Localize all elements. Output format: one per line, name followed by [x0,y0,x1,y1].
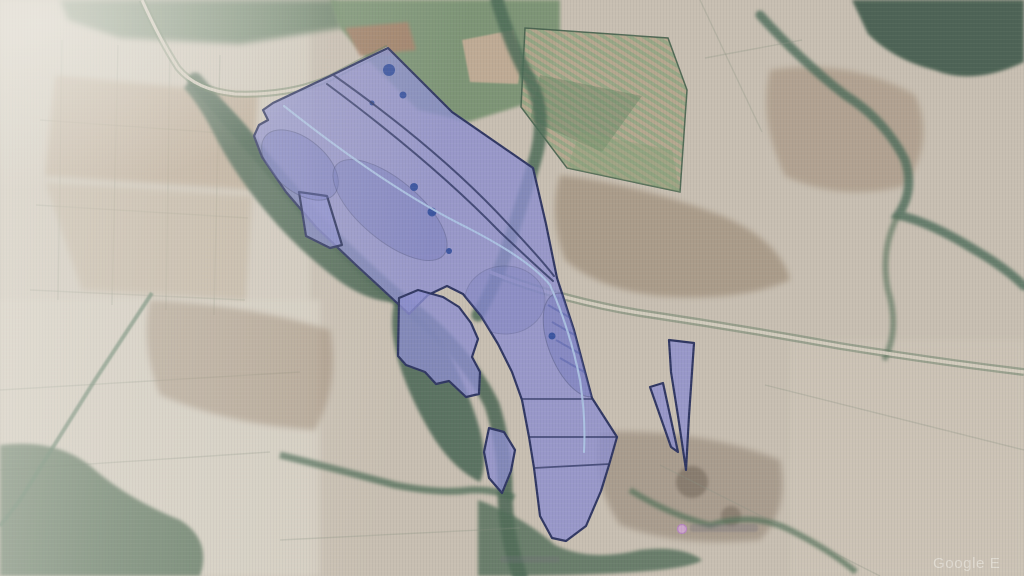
map-canvas[interactable]: Google E [0,0,1024,576]
terrain-field-bottomright-pale [790,340,1024,576]
terrain-dark-spot-1 [676,466,708,498]
place-label-smudge-2 [500,556,560,563]
google-watermark: Google E [933,555,1000,572]
place-label-smudge [690,524,758,532]
place-marker-icon[interactable] [678,525,687,534]
